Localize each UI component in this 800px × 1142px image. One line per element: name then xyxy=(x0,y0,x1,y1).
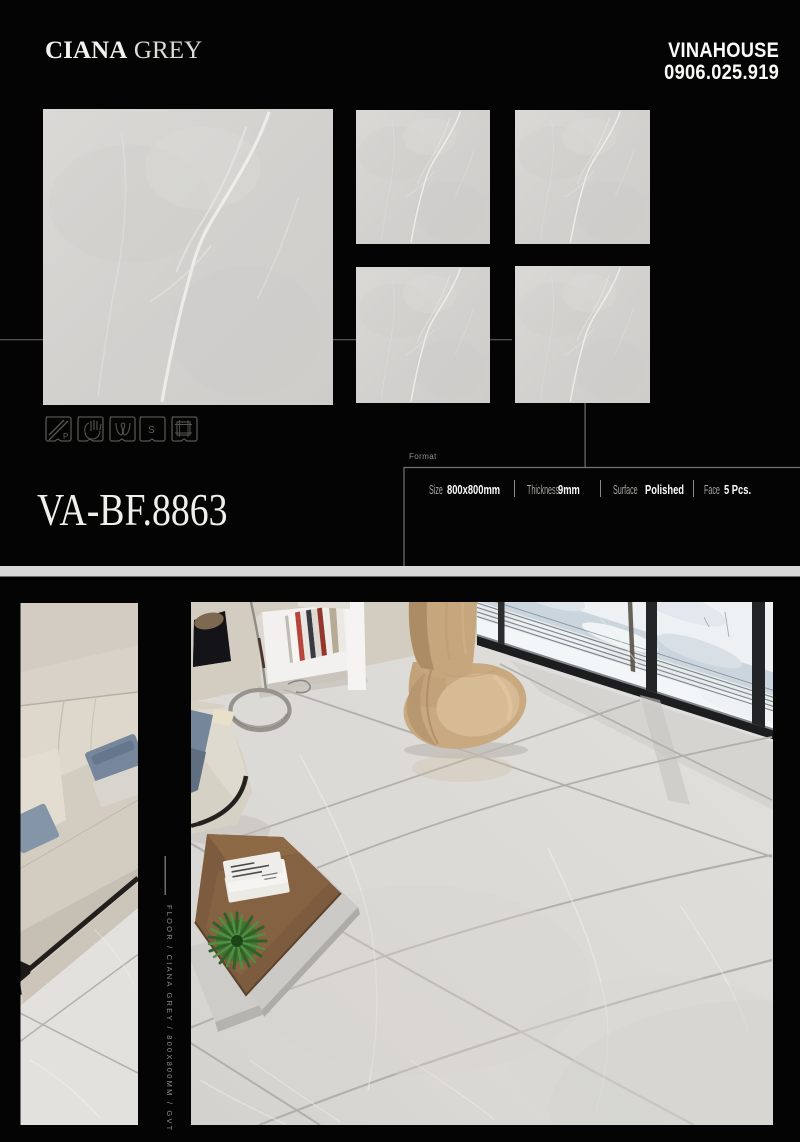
svg-text:P: P xyxy=(63,432,68,441)
svg-text:S: S xyxy=(148,425,155,436)
